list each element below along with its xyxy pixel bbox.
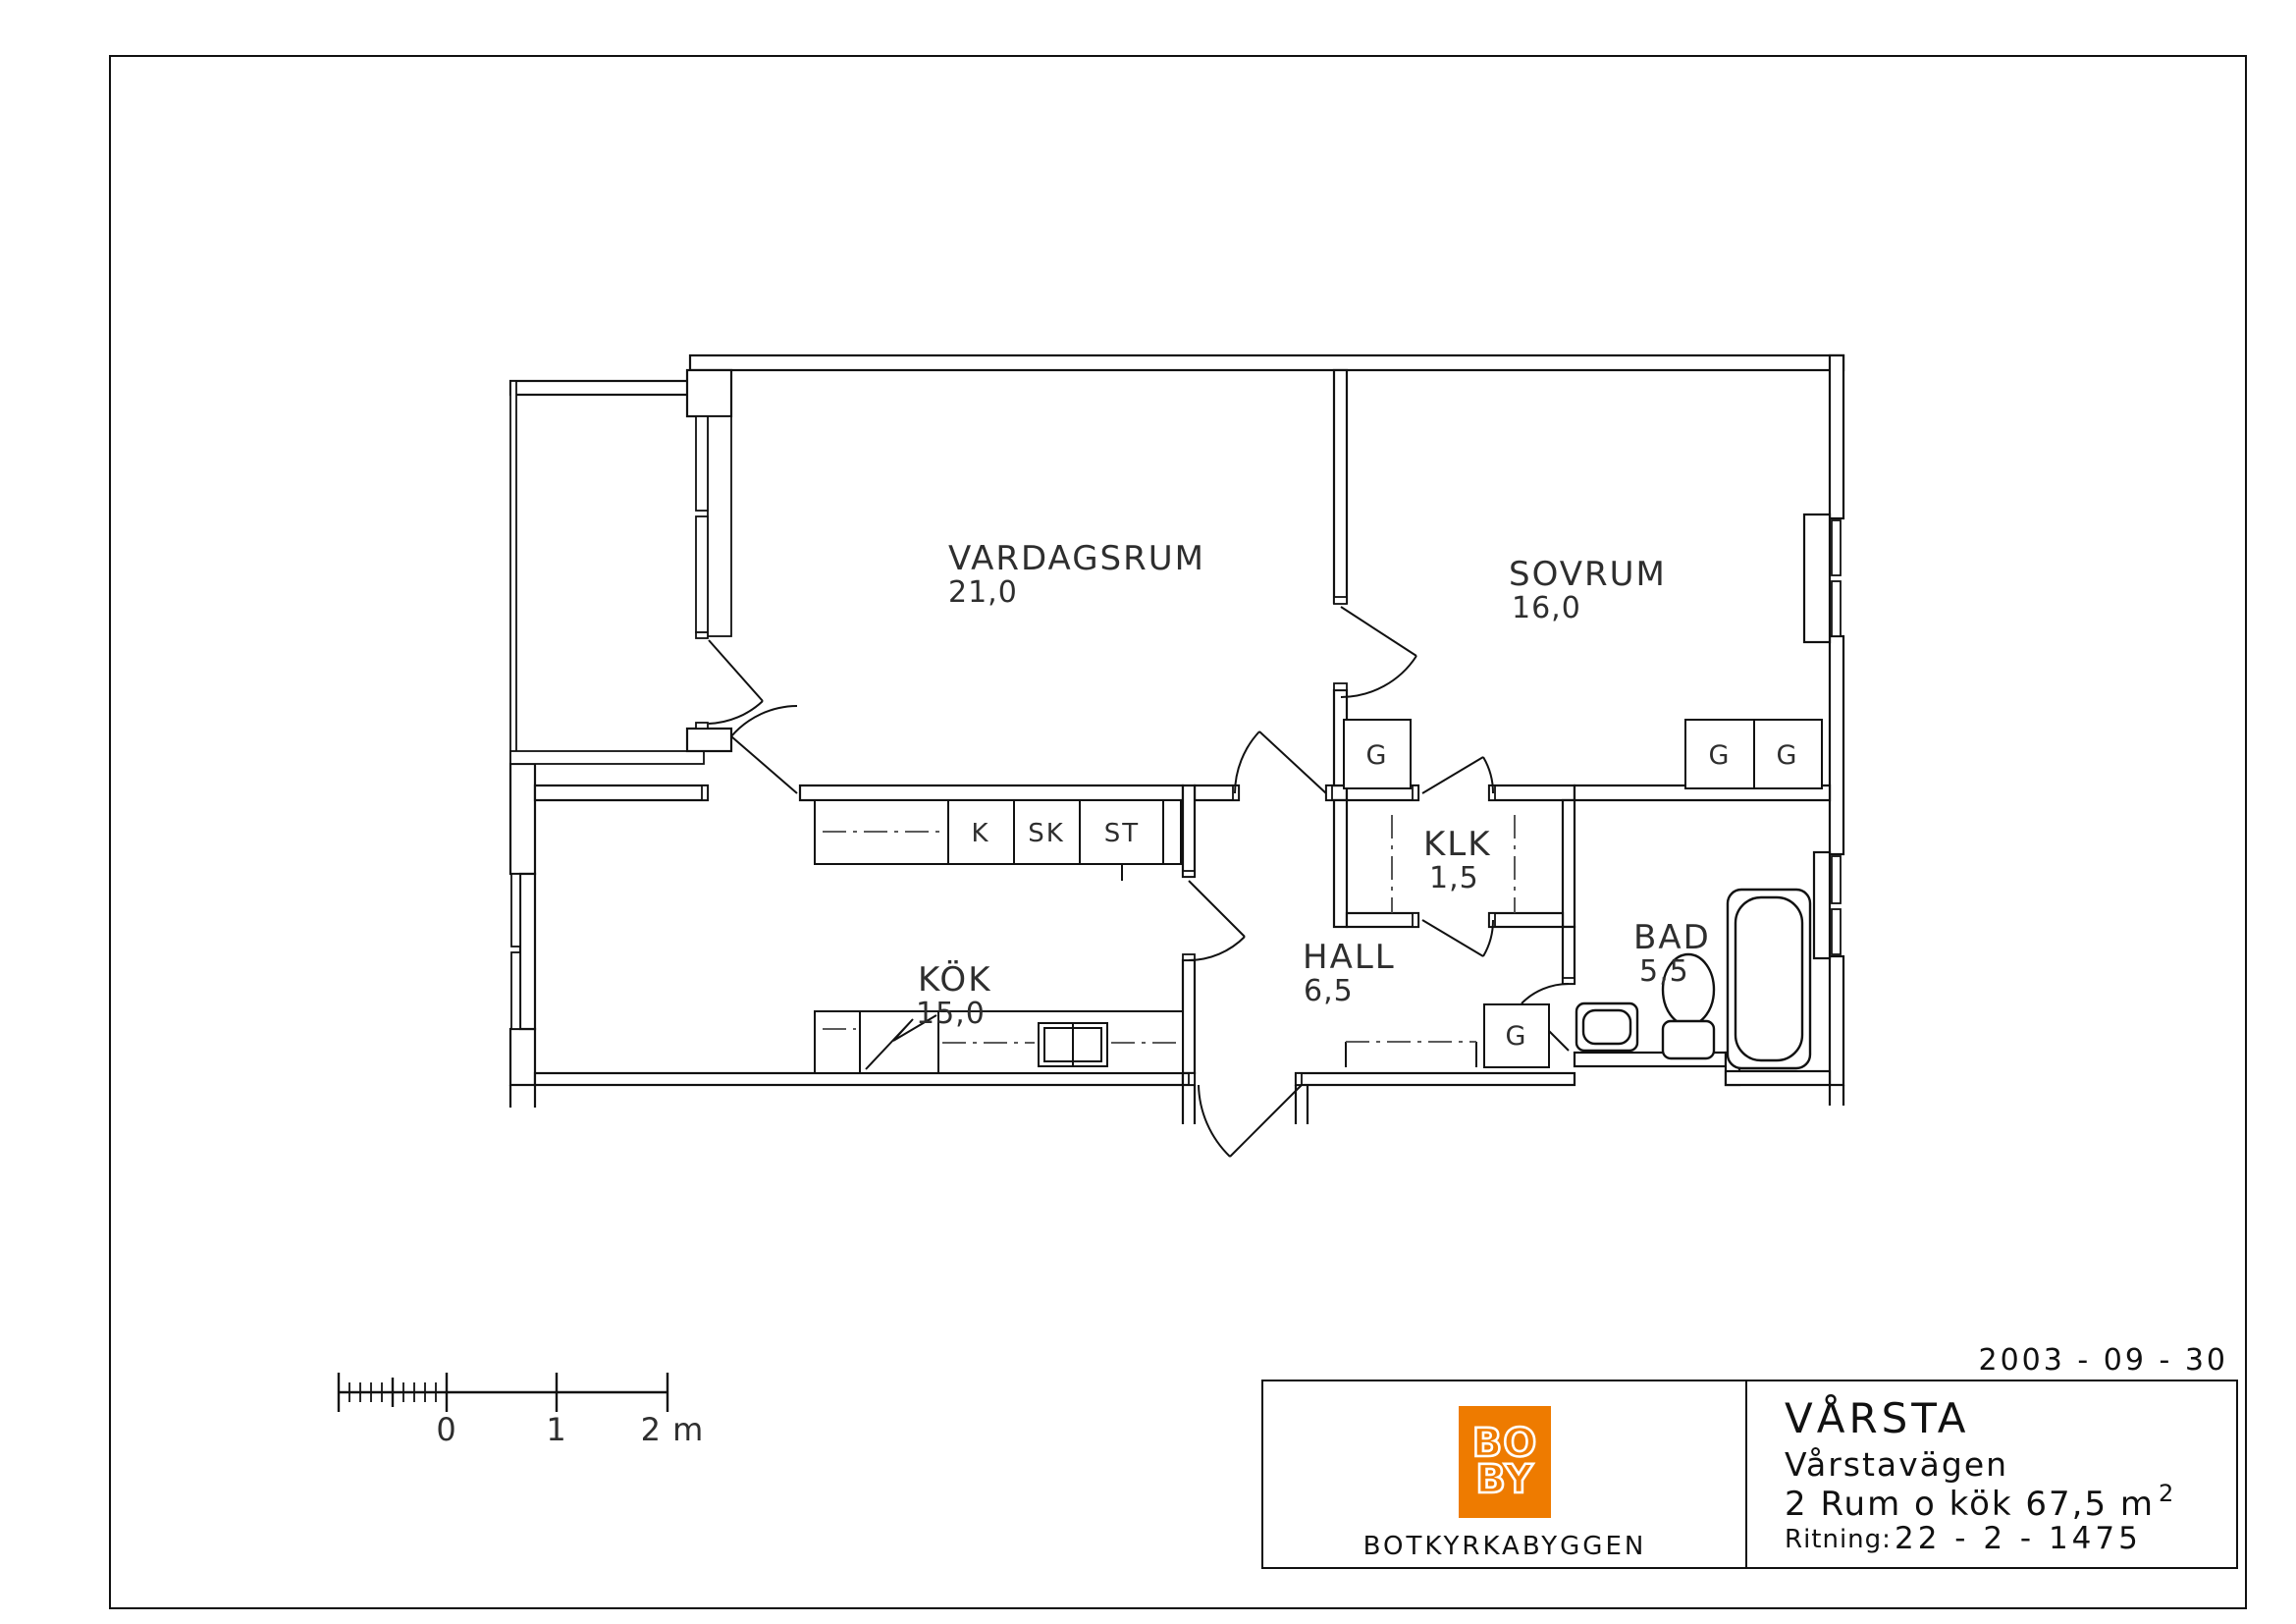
room-area-sovrum: 16,0	[1512, 594, 1581, 623]
room-label-bad: BAD	[1633, 921, 1711, 954]
closet-label: G	[1777, 742, 1799, 769]
company-name: BOTKYRKABYGGEN	[1363, 1532, 1647, 1561]
logo-text-line2: BY	[1475, 1462, 1533, 1498]
closet-label: G	[1366, 742, 1389, 769]
room-area-kok: 15,0	[916, 1000, 986, 1029]
apartment-sup: 2	[2159, 1480, 2175, 1507]
apartment-description: 2 Rum o kök 67,5 m2	[1785, 1480, 2175, 1524]
washbasin-inner	[1583, 1010, 1630, 1044]
cabinet-label-k: K	[971, 821, 989, 846]
room-label-klk: KLK	[1423, 828, 1492, 861]
room-area-hall: 6,5	[1304, 977, 1354, 1006]
room-label-sovrum: SOVRUM	[1509, 558, 1667, 591]
room-area-bad: 5,5	[1639, 957, 1689, 987]
room-label-vardagsrum: VARDAGSRUM	[948, 542, 1205, 575]
room-label-hall: HALL	[1303, 941, 1396, 974]
boby-logo: BO BY	[1459, 1406, 1551, 1518]
bathroom-fixtures	[1576, 890, 1810, 1068]
drawing-number-label: Ritning:	[1785, 1525, 1892, 1554]
wall-continuation-stubs	[510, 1085, 1843, 1124]
drawing-date: 2003 - 09 - 30	[1979, 1343, 2229, 1378]
project-street: Vårstavägen	[1785, 1445, 2008, 1484]
cabinet-label-st: ST	[1104, 821, 1140, 846]
title-block-divider	[1745, 1380, 1747, 1569]
apartment-text: 2 Rum o kök 67,5 m	[1785, 1485, 2155, 1524]
room-area-vardagsrum: 21,0	[948, 578, 1018, 608]
room-label-kok: KÖK	[918, 963, 992, 997]
scale-bar	[339, 1373, 667, 1412]
bathtub-inner	[1735, 897, 1802, 1060]
cabinet-label-sk: SK	[1028, 821, 1065, 846]
room-area-klk: 1,5	[1429, 864, 1479, 893]
scale-tick-1: 1	[546, 1414, 566, 1445]
scale-tick-2m: 2 m	[641, 1414, 705, 1445]
scale-tick-0: 0	[436, 1414, 456, 1445]
toilet-tank	[1663, 1021, 1714, 1058]
project-area-name: VÅRSTA	[1785, 1394, 1969, 1442]
floorplan-sheet: VARDAGSRUM 21,0 SOVRUM 16,0 KÖK 15,0 HAL…	[0, 0, 2296, 1624]
kitchen-cabinets	[815, 800, 1476, 1073]
closet-label: G	[1709, 742, 1732, 769]
closet-label: G	[1506, 1023, 1528, 1050]
drawing-number-value: 22 - 2 - 1475	[1895, 1521, 2142, 1556]
